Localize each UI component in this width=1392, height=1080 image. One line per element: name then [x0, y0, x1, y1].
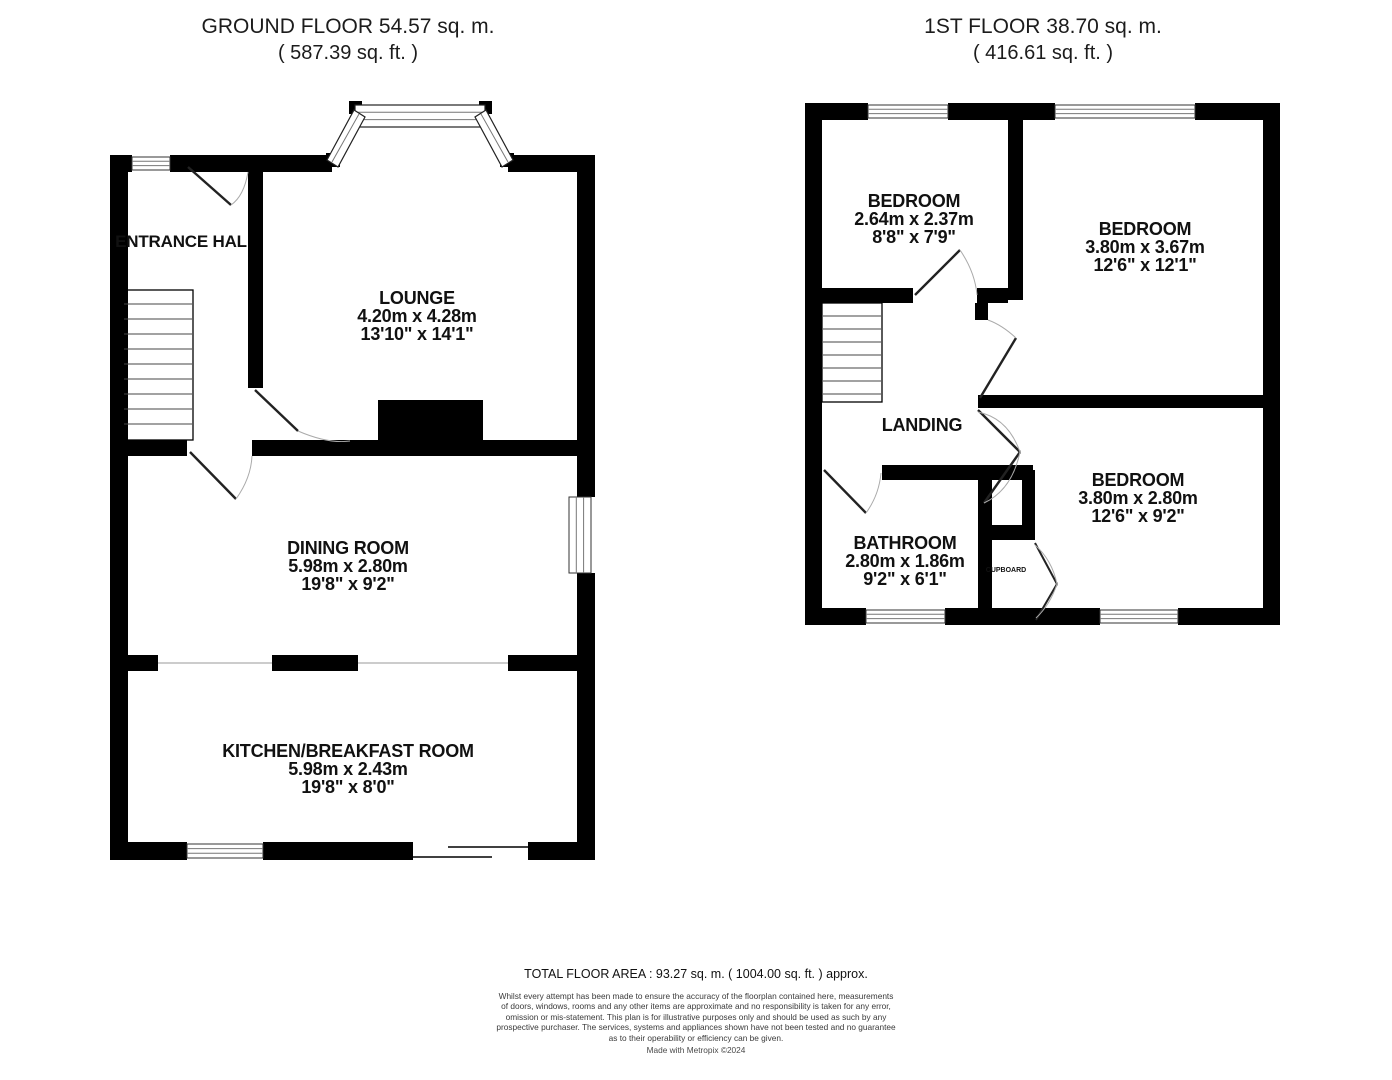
room-dim-metric: 3.80m x 2.80m: [1038, 489, 1238, 507]
room-dim-metric: 5.98m x 2.80m: [248, 557, 448, 575]
room-label-bathroom: BATHROOM 2.80m x 1.86m 9'2" x 6'1": [805, 534, 1005, 588]
room-label-cupboard: CUPBOARD: [976, 567, 1036, 575]
credit-line: Made with Metropix ©2024: [446, 1045, 946, 1055]
kitchen-door-opening: [413, 847, 530, 857]
disclaimer-line: omission or mis-statement. This plan is …: [446, 1012, 946, 1022]
ground-floor-stairs: [123, 290, 193, 440]
room-dim-metric: 4.20m x 4.28m: [317, 307, 517, 325]
ground-floor-title-main: GROUND FLOOR 54.57 sq. m.: [148, 14, 548, 40]
bedroom1-door: [915, 250, 977, 295]
room-dim-imperial: 12'6" x 9'2": [1038, 507, 1238, 525]
bedroom3-window: [1100, 610, 1178, 623]
first-floor-title-main: 1ST FLOOR 38.70 sq. m.: [843, 14, 1243, 40]
room-name: BATHROOM: [805, 534, 1005, 552]
bedroom2-window: [1055, 105, 1195, 118]
room-name: DINING ROOM: [248, 539, 448, 557]
room-dim-imperial: 19'8" x 8'0": [198, 778, 498, 796]
first-floor-title: 1ST FLOOR 38.70 sq. m. ( 416.61 sq. ft. …: [843, 14, 1243, 66]
room-label-entrance-hall: ENTRANCE HAL: [111, 233, 251, 251]
room-label-kitchen: KITCHEN/BREAKFAST ROOM 5.98m x 2.43m 19'…: [198, 742, 498, 796]
ground-floor-title-sub: ( 587.39 sq. ft. ): [148, 40, 548, 66]
bathroom-window: [866, 610, 945, 623]
room-name: LANDING: [847, 416, 997, 434]
disclaimer-line: prospective purchaser. The services, sys…: [446, 1022, 946, 1032]
bedroom1-window: [868, 105, 948, 118]
room-dim-metric: 2.64m x 2.37m: [814, 210, 1014, 228]
total-floor-area: TOTAL FLOOR AREA : 93.27 sq. m. ( 1004.0…: [396, 967, 996, 981]
floorplan-page: GROUND FLOOR 54.57 sq. m. ( 587.39 sq. f…: [0, 0, 1392, 1080]
bedroom2-door: [980, 320, 1016, 398]
room-name: BEDROOM: [814, 192, 1014, 210]
room-label-bedroom-1: BEDROOM 2.64m x 2.37m 8'8" x 7'9": [814, 192, 1014, 246]
room-dim-imperial: 12'6" x 12'1": [1045, 256, 1245, 274]
disclaimer-line: as to their operability or efficiency ca…: [446, 1033, 946, 1043]
dining-window: [569, 497, 591, 573]
first-floor-title-sub: ( 416.61 sq. ft. ): [843, 40, 1243, 66]
entrance-door: [188, 167, 248, 205]
room-dim-imperial: 19'8" x 9'2": [248, 575, 448, 593]
room-label-bedroom-3: BEDROOM 3.80m x 2.80m 12'6" x 9'2": [1038, 471, 1238, 525]
floorplan-drawing: [0, 0, 1392, 1080]
kitchen-window: [187, 844, 263, 858]
room-label-landing: LANDING: [847, 416, 997, 434]
dining-door: [190, 452, 252, 499]
chimney-breast: [378, 400, 483, 445]
lounge-door: [255, 390, 350, 442]
room-dim-imperial: 9'2" x 6'1": [805, 570, 1005, 588]
room-label-bedroom-2: BEDROOM 3.80m x 3.67m 12'6" x 12'1": [1045, 220, 1245, 274]
disclaimer-line: Whilst every attempt has been made to en…: [446, 991, 946, 1001]
first-floor-stairs: [822, 303, 882, 402]
bathroom-door: [824, 470, 881, 513]
disclaimer: Whilst every attempt has been made to en…: [446, 991, 946, 1055]
room-name: BEDROOM: [1045, 220, 1245, 238]
room-dim-imperial: 13'10" x 14'1": [317, 325, 517, 343]
room-dim-imperial: 8'8" x 7'9": [814, 228, 1014, 246]
room-dim-metric: 3.80m x 3.67m: [1045, 238, 1245, 256]
room-label-lounge: LOUNGE 4.20m x 4.28m 13'10" x 14'1": [317, 289, 517, 343]
room-label-dining-room: DINING ROOM 5.98m x 2.80m 19'8" x 9'2": [248, 539, 448, 593]
room-dim-metric: 2.80m x 1.86m: [805, 552, 1005, 570]
ground-floor-title: GROUND FLOOR 54.57 sq. m. ( 587.39 sq. f…: [148, 14, 548, 66]
room-name: ENTRANCE HAL: [111, 233, 251, 251]
room-name: CUPBOARD: [976, 567, 1036, 575]
bay-window: [327, 105, 513, 167]
disclaimer-line: of doors, windows, rooms and any other i…: [446, 1001, 946, 1011]
room-dim-metric: 5.98m x 2.43m: [198, 760, 498, 778]
room-name: BEDROOM: [1038, 471, 1238, 489]
room-name: LOUNGE: [317, 289, 517, 307]
entrance-window: [132, 157, 170, 170]
room-name: KITCHEN/BREAKFAST ROOM: [198, 742, 498, 760]
